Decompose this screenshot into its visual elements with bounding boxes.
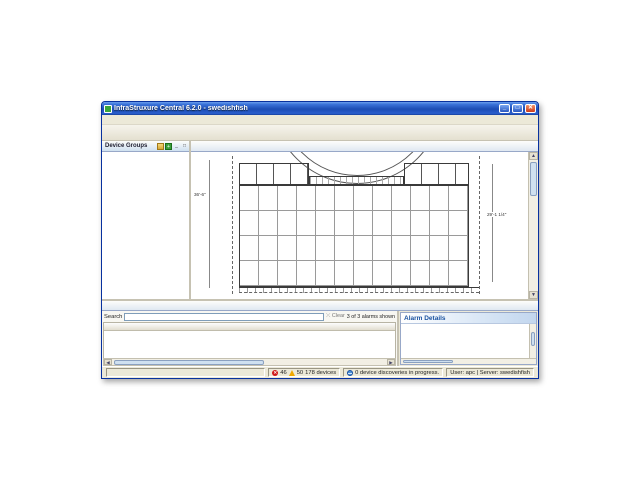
device-group-tree [102, 152, 189, 299]
alarm-details-panel: Alarm Details [400, 312, 537, 365]
device-groups-panel: Device Groups + _ □ [102, 141, 191, 299]
menu-bar [102, 115, 538, 125]
discovery-text: 0 device discoveries in progress. [355, 370, 439, 376]
search-input[interactable] [124, 313, 324, 321]
close-button[interactable]: ✕ [525, 104, 536, 113]
scroll-left-icon[interactable]: ◀ [104, 359, 112, 365]
panel-tabs [102, 301, 538, 311]
dimension-label-right: 29'-1 1/4" [486, 212, 507, 217]
table-horizontal-scrollbar[interactable]: ◀ ▶ [103, 358, 396, 366]
alarm-counts[interactable]: ✕ 46 50 178 devices [268, 368, 340, 377]
alarm-table-rows [104, 331, 395, 358]
map-canvas[interactable]: 36'-6" 29'-1 1/4" [191, 152, 529, 299]
status-bar: ✕ 46 50 178 devices 0 device discoveries… [102, 366, 538, 378]
new-folder-icon[interactable] [157, 143, 164, 150]
boundary-left [232, 156, 233, 294]
minimize-tree-icon[interactable]: _ [173, 143, 180, 150]
discovery-status: 0 device discoveries in progress. [343, 368, 443, 377]
window-title: InfraStruxure Central 6.2.0 - swedishfis… [114, 105, 497, 112]
alarm-table-header[interactable] [104, 323, 395, 331]
maximize-button[interactable]: □ [512, 104, 523, 113]
alarm-details-body [401, 324, 536, 358]
details-horizontal-scrollbar[interactable] [401, 358, 536, 364]
app-icon [104, 105, 112, 113]
warning-count: 50 [297, 370, 303, 376]
dimension-line-right [492, 164, 493, 282]
perspective-toolbar [102, 125, 538, 141]
view-tabs [191, 141, 538, 152]
rack-row-top-center [309, 176, 404, 185]
device-groups-header: Device Groups + _ □ [102, 141, 189, 152]
warning-count-icon [289, 370, 295, 376]
alarm-count: 3 of 3 alarms shown [347, 314, 395, 320]
table-scroll-thumb[interactable] [114, 360, 264, 365]
scroll-right-icon[interactable]: ▶ [387, 359, 395, 365]
boundary-right [479, 156, 480, 294]
rack-grid [239, 185, 469, 287]
app-window: InfraStruxure Central 6.2.0 - swedishfis… [101, 101, 539, 379]
title-bar[interactable]: InfraStruxure Central 6.2.0 - swedishfis… [102, 102, 538, 115]
scroll-down-icon[interactable]: ▼ [529, 291, 538, 299]
active-alarms-pane: Search ⤫ Clear 3 of 3 alarms shown ◀ ▶ [102, 311, 399, 366]
map-scroll-thumb[interactable] [530, 162, 537, 196]
alarm-table [103, 322, 396, 358]
session-info: User: apc | Server: swedishfish [446, 368, 534, 377]
map-wrap: 36'-6" 29'-1 1/4" ▲ [191, 152, 538, 299]
details-vertical-scrollbar[interactable] [529, 324, 536, 358]
globe-icon [347, 370, 353, 376]
device-groups-toolbar: + _ □ [157, 143, 189, 150]
rack-row-bottom [239, 287, 479, 293]
bottom-panel: Search ⤫ Clear 3 of 3 alarms shown ◀ ▶ [102, 299, 538, 366]
scroll-up-icon[interactable]: ▲ [529, 152, 538, 160]
search-row: Search ⤫ Clear 3 of 3 alarms shown [102, 311, 397, 322]
search-label: Search [104, 314, 122, 320]
panel-body: Search ⤫ Clear 3 of 3 alarms shown ◀ ▶ [102, 311, 538, 366]
minimize-button[interactable]: _ [499, 104, 510, 113]
error-count: 46 [280, 370, 286, 376]
clear-button[interactable]: ⤫ Clear [326, 313, 345, 320]
map-vertical-scrollbar[interactable]: ▲ ▼ [529, 152, 538, 299]
status-filler [106, 368, 265, 377]
device-groups-tab[interactable]: Device Groups [102, 143, 150, 149]
add-device-group-icon[interactable]: + [165, 143, 172, 150]
dimension-line-left [209, 160, 210, 288]
maximize-tree-icon[interactable]: □ [181, 143, 188, 150]
device-count: 178 devices [305, 370, 336, 376]
session-text: User: apc | Server: swedishfish [450, 370, 530, 376]
alarm-details-title: Alarm Details [404, 315, 446, 322]
alarm-details-header: Alarm Details [401, 313, 536, 324]
rack-row-top-left [239, 163, 309, 185]
rack-row-top-right [404, 163, 469, 185]
main-area: Device Groups + _ □ 36'-6" [102, 141, 538, 299]
map-view-panel: 36'-6" 29'-1 1/4" ▲ [191, 141, 538, 299]
dimension-label-left: 36'-6" [193, 192, 207, 197]
error-count-icon: ✕ [272, 370, 278, 376]
